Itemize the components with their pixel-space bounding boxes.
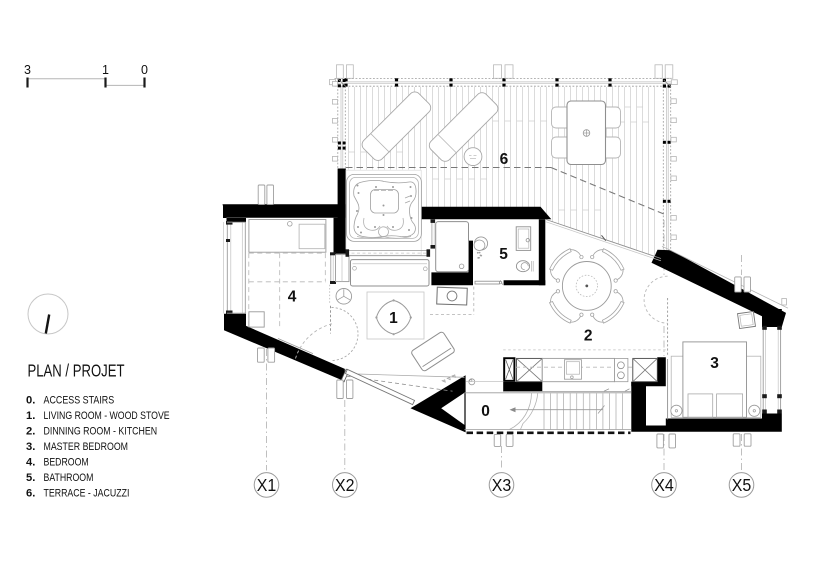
svg-text:X1: X1 bbox=[257, 475, 277, 495]
svg-text:1: 1 bbox=[389, 310, 398, 327]
svg-text:1: 1 bbox=[102, 63, 109, 77]
svg-text:DINNING ROOM - KITCHEN: DINNING ROOM - KITCHEN bbox=[44, 426, 158, 438]
svg-text:ACCESS STAIRS: ACCESS STAIRS bbox=[44, 395, 115, 407]
svg-text:X4: X4 bbox=[654, 475, 674, 495]
svg-text:PLAN / PROJET: PLAN / PROJET bbox=[28, 361, 125, 381]
svg-text:5.: 5. bbox=[26, 472, 35, 484]
svg-text:0: 0 bbox=[481, 403, 490, 420]
svg-text:6: 6 bbox=[500, 151, 509, 168]
svg-text:2: 2 bbox=[584, 327, 593, 344]
svg-text:BEDROOM: BEDROOM bbox=[44, 457, 89, 469]
svg-text:2.: 2. bbox=[26, 426, 35, 438]
svg-text:3: 3 bbox=[24, 63, 31, 77]
svg-text:4.: 4. bbox=[26, 457, 35, 469]
svg-text:MASTER BEDROOM: MASTER BEDROOM bbox=[44, 441, 129, 453]
svg-text:3.: 3. bbox=[26, 441, 35, 453]
svg-text:X3: X3 bbox=[492, 475, 512, 495]
svg-text:1.: 1. bbox=[26, 410, 35, 422]
svg-text:0: 0 bbox=[141, 63, 148, 77]
svg-text:0.: 0. bbox=[26, 395, 35, 407]
svg-text:3: 3 bbox=[710, 355, 719, 372]
svg-text:X2: X2 bbox=[335, 475, 355, 495]
svg-text:5: 5 bbox=[499, 246, 508, 263]
svg-text:4: 4 bbox=[288, 288, 297, 305]
svg-text:6.: 6. bbox=[26, 488, 35, 500]
svg-text:LIVING ROOM - WOOD STOVE: LIVING ROOM - WOOD STOVE bbox=[44, 410, 170, 422]
svg-text:X5: X5 bbox=[732, 475, 752, 495]
svg-text:TERRACE - JACUZZI: TERRACE - JACUZZI bbox=[44, 488, 130, 500]
svg-text:BATHROOM: BATHROOM bbox=[44, 472, 94, 484]
